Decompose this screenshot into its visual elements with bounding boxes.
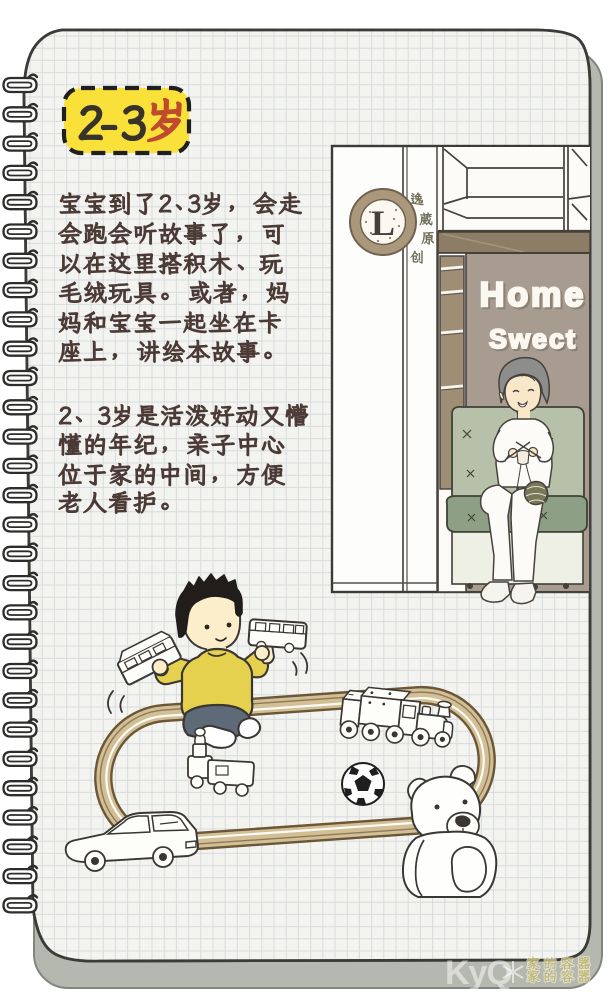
svg-text:KyQ: KyQ bbox=[445, 954, 512, 992]
svg-text:Swect: Swect bbox=[489, 324, 577, 354]
svg-text:L: L bbox=[371, 203, 395, 243]
svg-text:Home: Home bbox=[480, 276, 586, 314]
